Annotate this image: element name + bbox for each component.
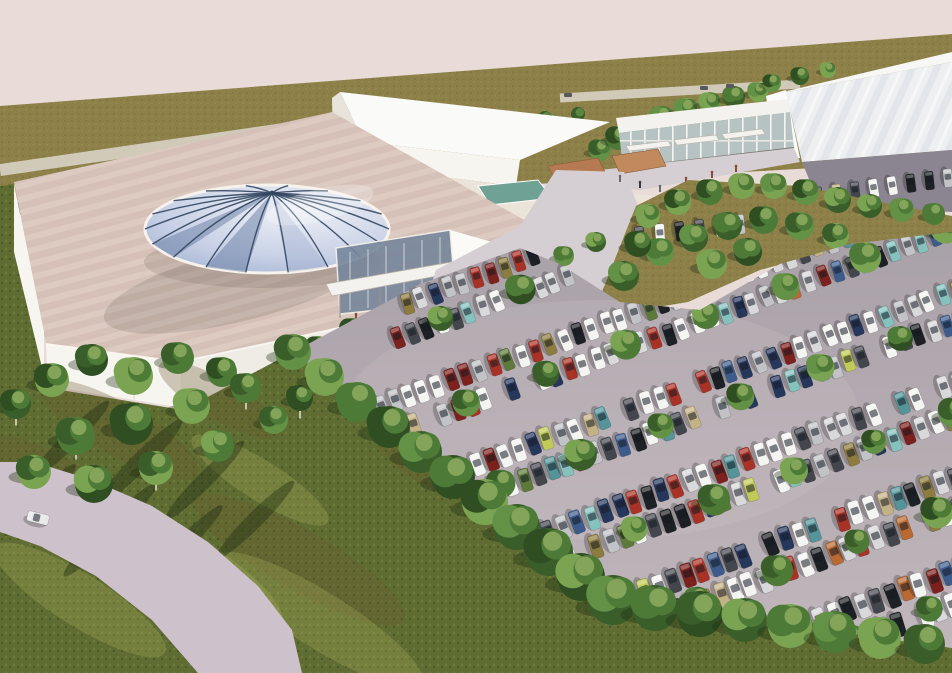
person-head <box>659 185 662 188</box>
person-head <box>619 175 622 178</box>
tree-highlight <box>607 579 627 599</box>
tree-highlight <box>694 594 712 612</box>
tree-highlight <box>129 360 144 375</box>
person-body <box>659 187 661 192</box>
tree-highlight <box>30 458 44 472</box>
person-body <box>639 183 641 188</box>
person <box>735 165 738 172</box>
tree-highlight <box>543 363 553 373</box>
tree-highlight <box>577 441 590 454</box>
tree-highlight <box>271 408 282 419</box>
tree-highlight <box>875 620 892 637</box>
tree-highlight <box>658 415 668 425</box>
tree-highlight <box>703 304 714 315</box>
person <box>711 171 714 178</box>
tree-highlight <box>737 385 748 396</box>
person-head <box>355 313 358 316</box>
car-glass <box>944 174 951 180</box>
tree-highlight <box>89 468 104 483</box>
tree-highlight <box>174 344 187 357</box>
car-glass <box>926 176 933 182</box>
tree-highlight <box>463 391 474 402</box>
tree-highlight <box>152 454 166 468</box>
distant-car <box>726 84 734 88</box>
tree-highlight <box>854 531 864 541</box>
tree-highlight <box>725 214 736 225</box>
person <box>639 181 642 188</box>
tree-highlight <box>218 359 230 371</box>
person-head <box>639 181 642 184</box>
tree-highlight <box>817 356 828 367</box>
architectural-rendering <box>0 0 952 673</box>
tree-highlight <box>920 627 936 643</box>
tree-highlight <box>770 75 777 82</box>
tree-highlight <box>416 434 433 451</box>
tree-highlight <box>835 189 845 199</box>
tree-highlight <box>384 409 401 426</box>
tree-highlight <box>649 588 667 606</box>
tree-highlight <box>711 486 724 499</box>
tree-highlight <box>739 175 749 185</box>
tree-highlight <box>731 88 740 97</box>
tree-highlight <box>782 275 793 286</box>
person <box>619 175 622 182</box>
tree-highlight <box>71 420 86 435</box>
car-glass <box>852 187 859 193</box>
tree-highlight <box>867 196 877 206</box>
car-glass <box>656 229 663 235</box>
tree-highlight <box>320 361 335 376</box>
tree-highlight <box>871 431 881 441</box>
tree-highlight <box>48 366 62 380</box>
tree-highlight <box>691 226 702 237</box>
tree-highlight <box>897 328 907 338</box>
tree-highlight <box>214 432 227 445</box>
tree-highlight <box>797 214 808 225</box>
distant-car <box>564 93 572 97</box>
tree-highlight <box>594 234 602 242</box>
tree-highlight <box>707 94 716 103</box>
tree-highlight <box>289 337 303 351</box>
tree-highlight <box>657 240 668 251</box>
tree-highlight <box>862 244 874 256</box>
scene-layers <box>0 0 952 673</box>
tree-highlight <box>620 263 632 275</box>
tree-highlight <box>933 499 946 512</box>
tree-highlight <box>242 375 254 387</box>
tree-highlight <box>631 518 641 528</box>
tree-highlight <box>562 248 570 256</box>
person-head <box>685 177 688 180</box>
person-head <box>735 165 738 168</box>
tree-highlight <box>517 277 529 289</box>
person-body <box>711 173 713 178</box>
car-glass <box>907 179 914 185</box>
tree-highlight <box>931 205 940 214</box>
scene-canvas <box>0 0 952 673</box>
tree-highlight <box>543 532 562 551</box>
tree-highlight <box>12 391 24 403</box>
tree-highlight <box>708 251 720 263</box>
tree-highlight <box>803 181 813 191</box>
person-body <box>735 167 737 172</box>
tree-highlight <box>479 482 497 500</box>
tree-highlight <box>683 100 693 110</box>
tree-highlight <box>622 332 634 344</box>
tree-highlight <box>498 472 509 483</box>
car-glass <box>888 181 895 188</box>
tree-highlight <box>740 601 758 619</box>
tree-highlight <box>833 225 843 235</box>
tree-highlight <box>511 507 529 525</box>
tree-highlight <box>826 63 832 69</box>
tree-highlight <box>352 385 368 401</box>
tree-highlight <box>575 557 594 576</box>
person-body <box>619 177 621 182</box>
tree-highlight <box>675 191 685 201</box>
tree-highlight <box>635 233 645 243</box>
bush-canopy <box>576 108 584 116</box>
tree-highlight <box>448 458 466 476</box>
distant-car <box>700 86 708 90</box>
tree-highlight <box>761 208 772 219</box>
car-glass <box>870 184 877 191</box>
tree-highlight <box>188 391 202 405</box>
tree-highlight <box>707 181 717 191</box>
tree-highlight <box>438 308 448 318</box>
tree-highlight <box>899 200 909 210</box>
person-head <box>711 171 714 174</box>
tree-highlight <box>927 598 937 608</box>
tree-highlight <box>771 175 781 185</box>
tree-highlight <box>745 240 756 251</box>
person <box>659 185 662 192</box>
tree-highlight <box>830 614 847 631</box>
tree-highlight <box>127 406 144 423</box>
tree-highlight <box>645 206 655 216</box>
tree-highlight <box>791 459 802 470</box>
tree-highlight <box>785 607 803 625</box>
tree-highlight <box>88 346 101 359</box>
tree-highlight <box>774 557 787 570</box>
tree-highlight <box>798 68 805 75</box>
car-hood <box>656 225 664 229</box>
dome-apex <box>270 191 275 196</box>
